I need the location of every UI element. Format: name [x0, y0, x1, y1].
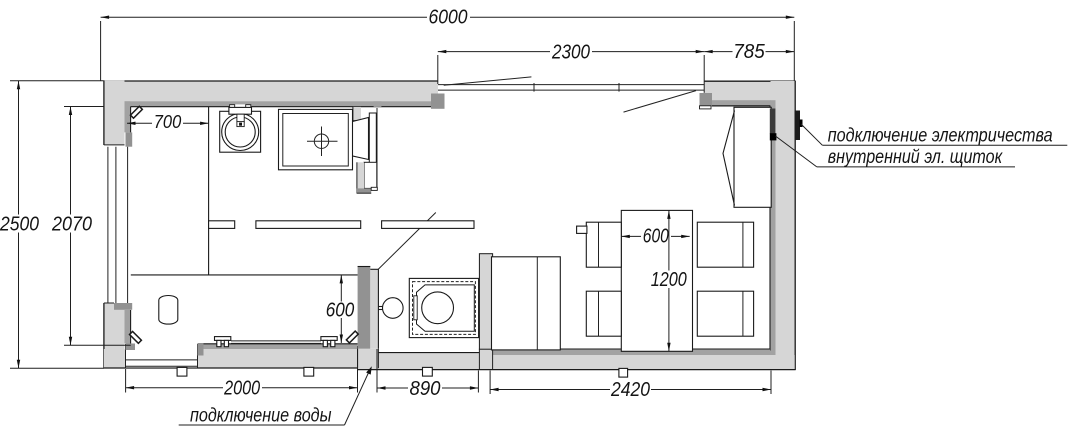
svg-text:600: 600: [643, 226, 669, 248]
svg-text:785: 785: [733, 41, 765, 63]
svg-text:2500: 2500: [0, 214, 39, 236]
svg-text:6000: 6000: [429, 7, 468, 29]
svg-text:2420: 2420: [610, 379, 650, 401]
svg-text:2000: 2000: [223, 378, 260, 400]
svg-text:1200: 1200: [651, 269, 687, 291]
svg-text:2070: 2070: [51, 214, 92, 236]
svg-text:подключение воды: подключение воды: [190, 406, 332, 427]
svg-text:внутренний эл. щиток: внутренний эл. щиток: [828, 147, 1003, 168]
svg-text:700: 700: [154, 112, 182, 132]
svg-text:890: 890: [410, 378, 441, 400]
svg-text:подключение электричества: подключение электричества: [828, 126, 1053, 147]
svg-text:2300: 2300: [551, 41, 590, 63]
svg-text:600: 600: [326, 299, 355, 321]
